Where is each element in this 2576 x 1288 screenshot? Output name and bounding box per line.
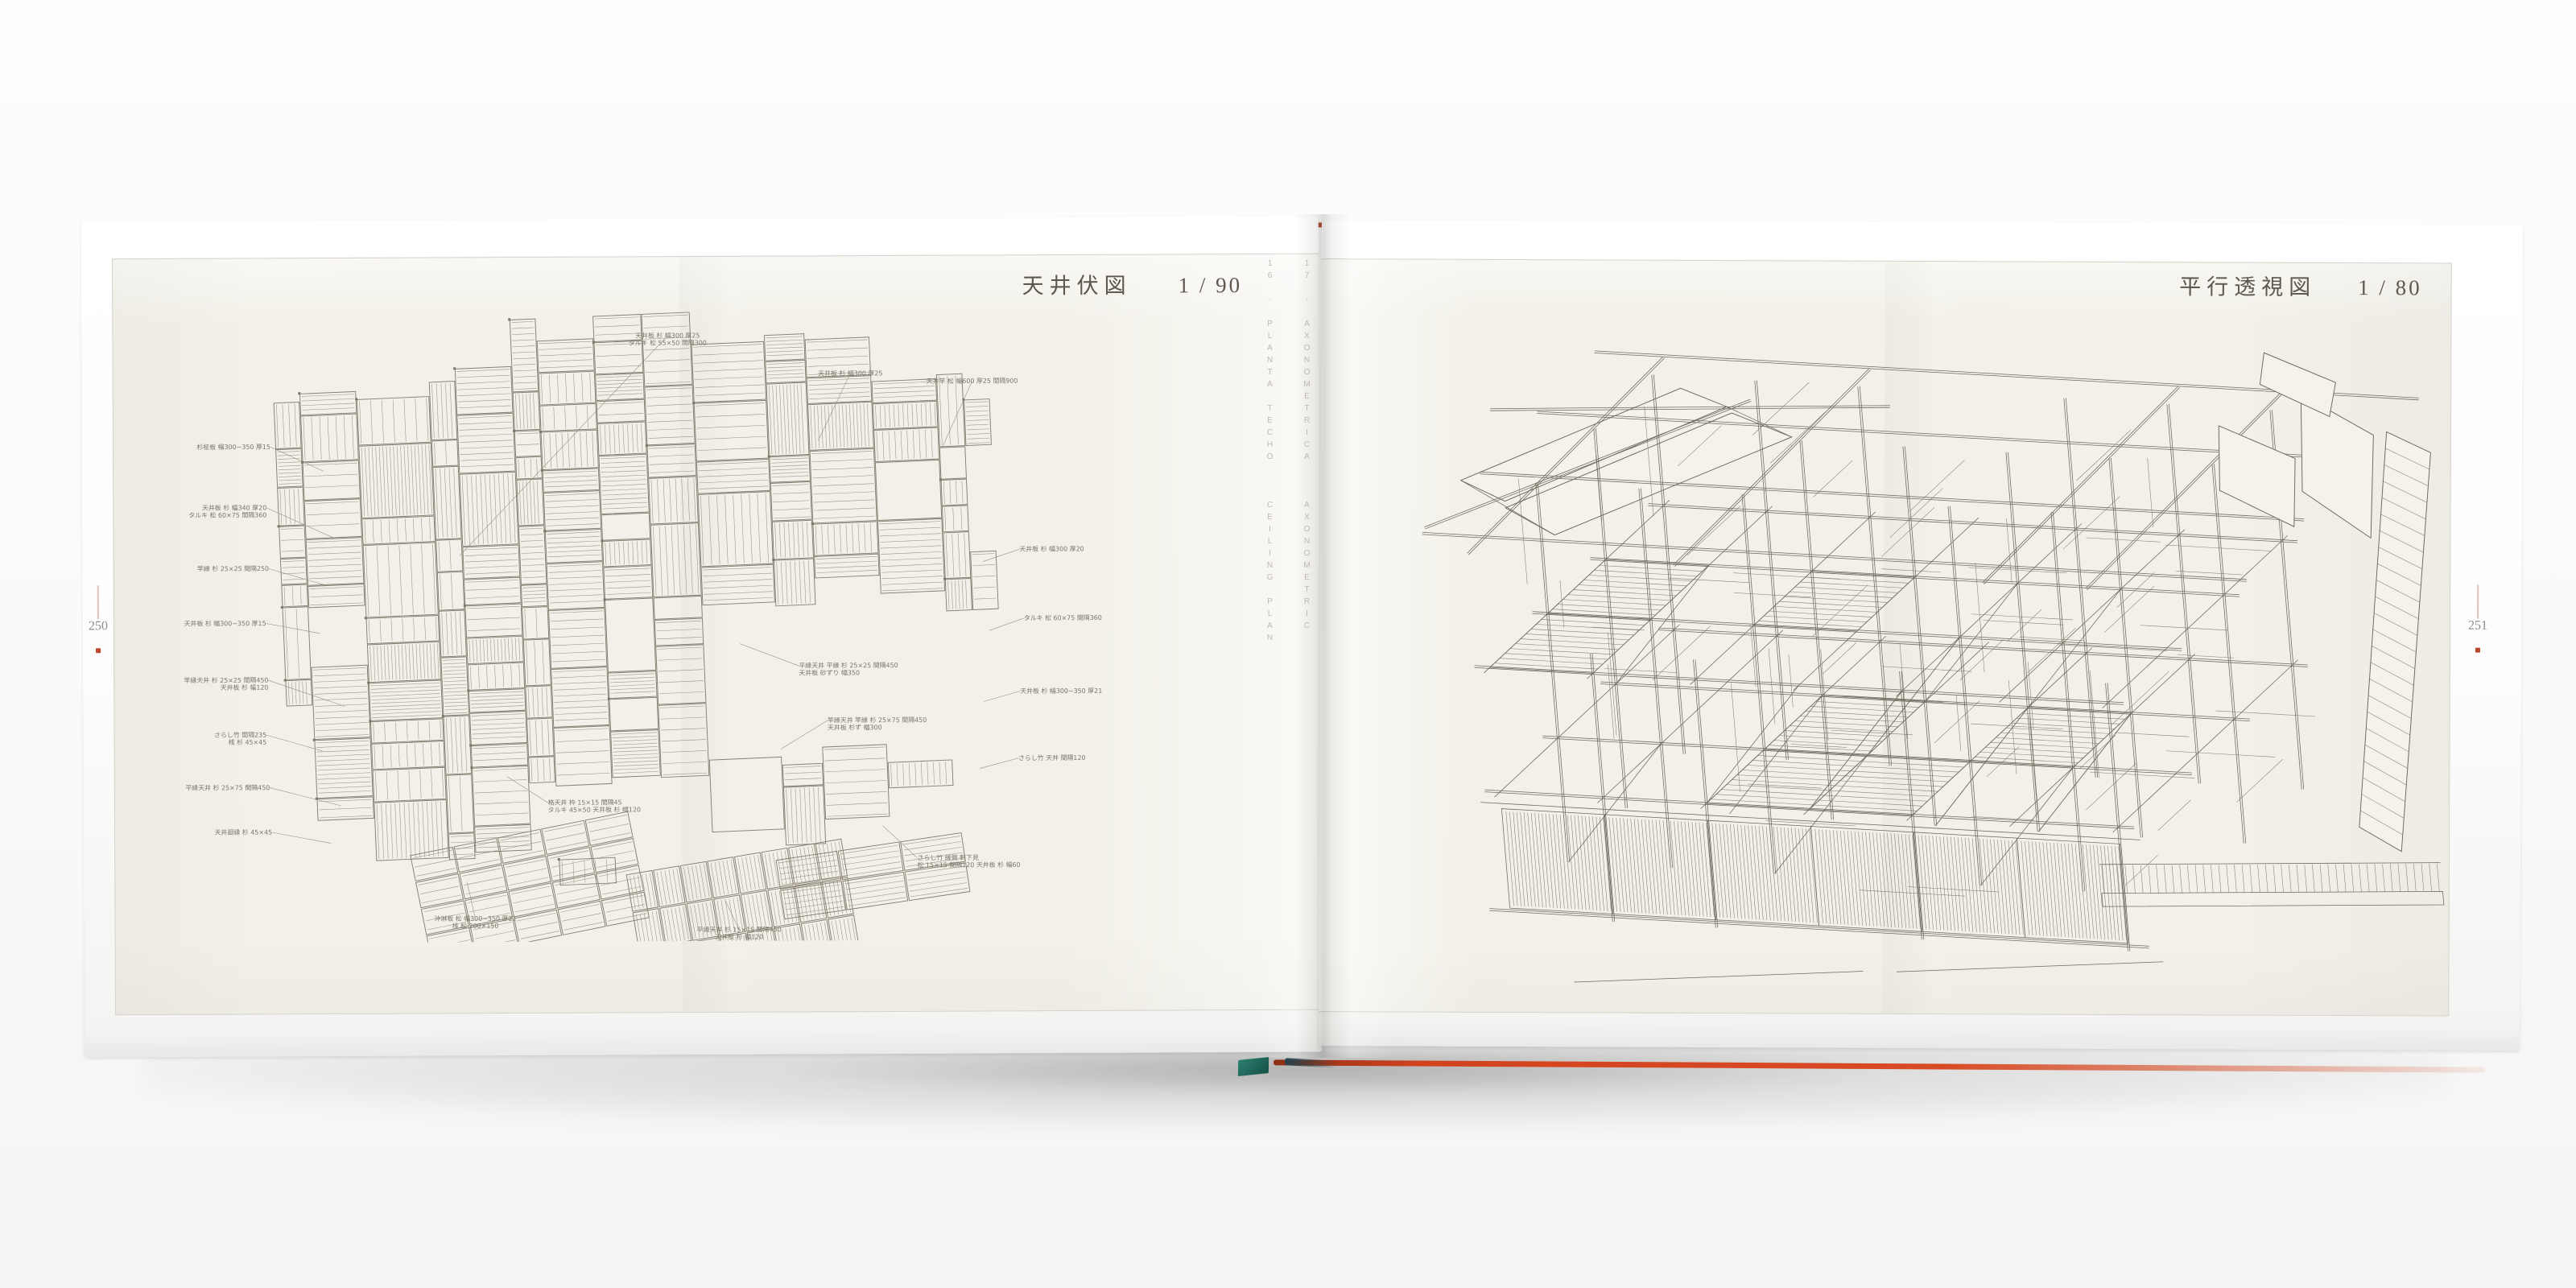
svg-text:天井板 砂ずり 幅350: 天井板 砂ずり 幅350 bbox=[799, 668, 860, 676]
drawing-scale-left: 1 / 90 bbox=[1179, 273, 1243, 298]
page-left: 天井伏図 1 / 90 杉柾板 幅300~350 厚15天井板 杉 幅340 厚… bbox=[81, 217, 1323, 1058]
svg-text:桟 杉 45×45: 桟 杉 45×45 bbox=[229, 738, 267, 746]
svg-text:天井板 杉 幅300~350 厚15: 天井板 杉 幅300~350 厚15 bbox=[184, 619, 266, 627]
book-shadow-core bbox=[765, 1051, 1892, 1099]
svg-text:竿縁 杉 25×25 間隔250: 竿縁 杉 25×25 間隔250 bbox=[197, 564, 269, 572]
page-right: 平行透視図 1 / 80 251 bbox=[1319, 220, 2523, 1051]
svg-text:タルキ 松 60×75 間隔360: タルキ 松 60×75 間隔360 bbox=[1024, 613, 1102, 621]
spine-caption-left: 16 · PLANTA TECHO CEILING PLAN bbox=[1265, 259, 1274, 646]
svg-text:タルキ 松 55×50 間隔300: タルキ 松 55×50 間隔300 bbox=[629, 338, 707, 346]
svg-text:平縁天井 平縁 杉 25×25 間隔450: 平縁天井 平縁 杉 25×25 間隔450 bbox=[799, 661, 898, 670]
page-number-left: 250 bbox=[85, 619, 112, 634]
svg-text:竿縁天井 竿縁 杉 25×75 間隔450: 竿縁天井 竿縁 杉 25×75 間隔450 bbox=[828, 716, 927, 724]
svg-text:さらし竹 天井 間隔120: さらし竹 天井 間隔120 bbox=[1018, 753, 1086, 762]
svg-text:天井板 杉 幅300 厚25: 天井板 杉 幅300 厚25 bbox=[635, 331, 700, 339]
svg-text:天井板 杉ず 幅300: 天井板 杉ず 幅300 bbox=[828, 723, 882, 731]
page-left-fold-tick bbox=[97, 585, 99, 619]
axonometric-drawing bbox=[1368, 282, 2482, 1020]
svg-text:杉柾板 幅300~350 厚15: 杉柾板 幅300~350 厚15 bbox=[196, 443, 270, 451]
svg-text:さらし竹 間隔235: さらし竹 間隔235 bbox=[214, 731, 266, 739]
svg-text:竿縁天井 杉 25×25 間隔450: 竿縁天井 杉 25×25 間隔450 bbox=[184, 676, 268, 684]
svg-text:天井板 杉 幅120: 天井板 杉 幅120 bbox=[715, 932, 763, 940]
page-right-red-dot bbox=[2475, 648, 2480, 653]
svg-text:天井竿 松 幅600 厚25 間隔900: 天井竿 松 幅600 厚25 間隔900 bbox=[927, 377, 1018, 385]
svg-text:天井廻縁 杉 45×45: 天井廻縁 杉 45×45 bbox=[215, 828, 273, 836]
svg-text:天井板 杉 幅300 厚25: 天井板 杉 幅300 厚25 bbox=[818, 369, 882, 377]
svg-text:沖淋板 松 幅300~350 厚21: 沖淋板 松 幅300~350 厚21 bbox=[434, 914, 516, 923]
cover-edge-teal bbox=[1238, 1057, 1269, 1076]
svg-text:天井板 杉 幅300 厚20: 天井板 杉 幅300 厚20 bbox=[1019, 544, 1084, 552]
svg-text:タルキ 松 60×75 間隔360: タルキ 松 60×75 間隔360 bbox=[188, 510, 266, 518]
svg-text:平縁天井 杉 25×75 間隔450: 平縁天井 杉 25×75 間隔450 bbox=[185, 783, 270, 791]
page-left-sheet: 天井伏図 1 / 90 杉柾板 幅300~350 厚15天井板 杉 幅340 厚… bbox=[112, 254, 1322, 1016]
book-photograph: 天井伏図 1 / 90 杉柾板 幅300~350 厚15天井板 杉 幅340 厚… bbox=[0, 0, 2576, 1288]
svg-text:タルキ 45×50 天井板 杉 幅120: タルキ 45×50 天井板 杉 幅120 bbox=[548, 805, 641, 814]
page-left-red-dot bbox=[96, 648, 101, 653]
spine-caption-right: 17 · AXONOMÉTRICA AXONOMETRIC bbox=[1302, 259, 1311, 634]
svg-text:天井板 杉 幅120: 天井板 杉 幅120 bbox=[221, 683, 269, 691]
svg-text:天井板 杉 幅300~350 厚21: 天井板 杉 幅300~350 厚21 bbox=[1020, 687, 1102, 695]
svg-text:格天井 枠 15×15 間隔45: 格天井 枠 15×15 間隔45 bbox=[548, 798, 622, 806]
ceiling-plan-drawing: 杉柾板 幅300~350 厚15天井板 杉 幅340 厚20タルキ 松 60×7… bbox=[168, 295, 1185, 943]
svg-text:平縁天井 杉 15×15 間隔450: 平縁天井 杉 15×15 間隔450 bbox=[697, 925, 782, 933]
page-number-right: 251 bbox=[2464, 619, 2491, 634]
page-right-fold-tick bbox=[2477, 585, 2479, 619]
svg-text:天井板 杉 幅340 厚20: 天井板 杉 幅340 厚20 bbox=[202, 503, 266, 511]
svg-text:さらし竹 縁側 軒下見: さらし竹 縁側 軒下見 bbox=[918, 853, 979, 861]
page-right-sheet: 平行透視図 1 / 80 bbox=[1319, 258, 2452, 1016]
svg-text:桟 松 200×150: 桟 松 200×150 bbox=[452, 922, 499, 930]
svg-text:松 15×15 間隔120 天井板 杉 幅60: 松 15×15 間隔120 天井板 杉 幅60 bbox=[918, 861, 1021, 869]
